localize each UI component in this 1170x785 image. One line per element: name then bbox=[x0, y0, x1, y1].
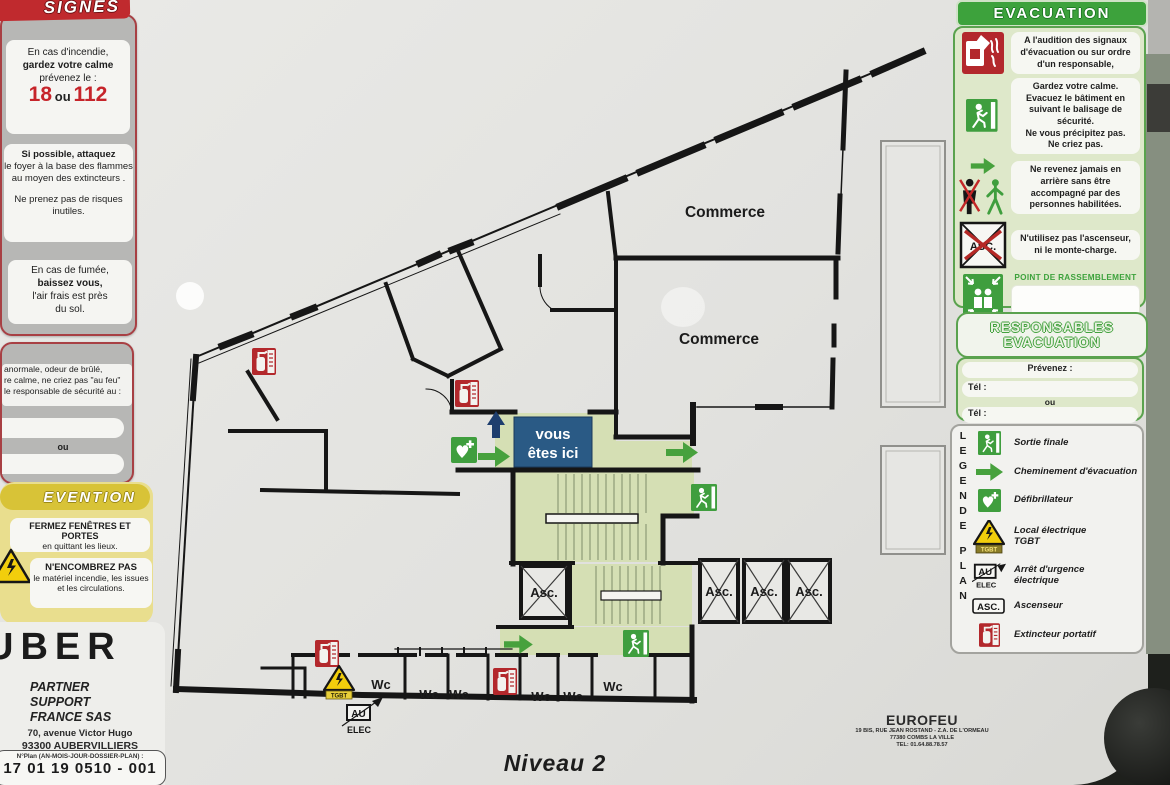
evac-text-1: A l'audition des signaux d'évacuation ou… bbox=[1011, 32, 1140, 73]
plan-number-field: N°Plan (AN-MOIS-JOUR-DOSSIER-PLAN) : 17 … bbox=[0, 750, 166, 785]
exit-man-icon bbox=[972, 431, 1006, 455]
exit-man-icon bbox=[959, 99, 1007, 133]
room-label-commerce-2: Commerce bbox=[679, 331, 759, 348]
ou: ou bbox=[55, 89, 71, 104]
prevention-title: EVENTION bbox=[43, 489, 136, 506]
elevator-label: Asc. bbox=[795, 584, 822, 599]
alert-l1: anormale, odeur de brûlé, bbox=[4, 364, 132, 375]
fire-instruction-box: En cas d'incendie, gardez votre calme pr… bbox=[6, 40, 130, 134]
company-l2: SUPPORT bbox=[30, 695, 111, 710]
svg-text:Wc: Wc bbox=[603, 679, 623, 694]
no-return-icons bbox=[959, 158, 1007, 217]
responsables-ou: ou bbox=[962, 397, 1138, 407]
glare bbox=[176, 282, 204, 310]
prevention-header: EVENTION bbox=[0, 484, 150, 510]
legend-label-exit: Sortie finale bbox=[1014, 438, 1068, 449]
svg-text:Wc: Wc bbox=[563, 689, 583, 704]
prev-b1a: FERMEZ FENÊTRES ET PORTES bbox=[10, 521, 150, 541]
floor-level-label: Niveau 2 bbox=[470, 750, 640, 777]
extinguisher-icon bbox=[972, 623, 1006, 647]
company-l3: FRANCE SAS bbox=[30, 710, 111, 725]
legend-label-extinguisher: Extincteur portatif bbox=[1014, 630, 1096, 641]
company-addr1: 70, avenue Victor Hugo bbox=[0, 728, 160, 740]
prev-b2c: et les circulations. bbox=[30, 583, 152, 593]
attack-l1: Si possible, attaquez bbox=[4, 149, 133, 161]
alert-l3: le responsable de sécurité au : bbox=[4, 386, 132, 397]
legend-label-elevator: Ascenseur bbox=[1014, 601, 1063, 612]
evac-text-2a: Gardez votre calme. bbox=[1015, 81, 1136, 93]
tel-field-1: Tél : bbox=[962, 381, 1138, 397]
close-windows-box: FERMEZ FENÊTRES ET PORTES en quittant le… bbox=[10, 518, 150, 552]
legend-item-exit: Sortie finale bbox=[972, 431, 1140, 455]
prevention-panel: EVENTION FERMEZ FENÊTRES ET PORTES en qu… bbox=[0, 482, 153, 624]
shaft-rectangles bbox=[881, 141, 945, 554]
evac-row-alarm: A l'audition des signaux d'évacuation ou… bbox=[959, 32, 1140, 74]
legend-word-legende: LEGENDE bbox=[957, 430, 969, 535]
responsables-title-1: RESPONSABLES bbox=[990, 320, 1114, 335]
smoke-l2: baissez vous, bbox=[8, 277, 132, 290]
legend-item-extinguisher: Extincteur portatif bbox=[972, 623, 1140, 647]
no-elevator-icon: ASC. bbox=[959, 221, 1007, 269]
installer-block: EUROFEU 19 BIS, RUE JEAN ROSTAND - Z.A. … bbox=[843, 712, 1001, 749]
attack-l3: Ne prenez pas de risques bbox=[4, 194, 133, 206]
responsables-fields: Prévenez : Tél : ou Tél : bbox=[956, 357, 1144, 421]
elevator-label: Asc. bbox=[705, 584, 732, 599]
evacuation-banner: EVACUATION bbox=[956, 0, 1148, 27]
legend-label-route: Cheminement d'évacuation bbox=[1014, 467, 1137, 478]
phone-blank-field bbox=[2, 454, 124, 474]
responsables-header: RESPONSABLES EVACUATION bbox=[956, 312, 1148, 358]
room-label-commerce-1: Commerce bbox=[685, 204, 765, 221]
svg-text:Wc: Wc bbox=[531, 689, 551, 704]
stair-handrail-lower bbox=[601, 591, 661, 600]
plan-number-label: N°Plan (AN-MOIS-JOUR-DOSSIER-PLAN) : bbox=[0, 753, 165, 760]
evac-text-2c: Ne vous précipitez pas. bbox=[1015, 128, 1136, 140]
svg-text:êtes ici: êtes ici bbox=[528, 445, 579, 462]
legend-items: Sortie finale Cheminement d'évacuation D… bbox=[972, 430, 1140, 648]
glare bbox=[661, 287, 705, 327]
green-arrow-icon bbox=[972, 463, 1006, 481]
extinguisher-icon bbox=[493, 668, 517, 695]
svg-text:Wc: Wc bbox=[449, 687, 469, 702]
evac-row-noreturn: Ne revenez jamais en arrière sans être a… bbox=[959, 158, 1140, 217]
legend-item-emergency-stop: AU ELEC Arrêt d'urgence électrique bbox=[972, 562, 1140, 590]
smoke-l4: du sol. bbox=[8, 303, 132, 316]
evac-text-3: Ne revenez jamais en arrière sans être a… bbox=[1011, 161, 1140, 214]
assembly-point-label: POINT DE RASSEMBLEMENT bbox=[1011, 273, 1140, 282]
exit-man-icon bbox=[623, 630, 649, 657]
consignes-title: SIGNES bbox=[44, 0, 121, 18]
svg-text:Wc: Wc bbox=[419, 687, 439, 702]
legend-label-au-2: électrique bbox=[1014, 576, 1084, 587]
green-arrow-icon bbox=[970, 158, 996, 174]
fire-l3: prévenez le : bbox=[6, 72, 130, 85]
elevator-label: Asc. bbox=[530, 585, 557, 600]
emergency-numbers: 18 ou 112 bbox=[6, 88, 130, 105]
fire-instructions-panel: En cas d'incendie, gardez votre calme pr… bbox=[0, 14, 137, 336]
legend-label-defib: Défibrillateur bbox=[1014, 495, 1073, 506]
evac-text-4: N'utilisez pas l'ascenseur, ni le monte-… bbox=[1011, 230, 1140, 259]
extinguisher-icon bbox=[252, 348, 276, 375]
emergency-stop-icon: AU ELEC bbox=[972, 562, 1006, 590]
prev-b2a: N'ENCOMBREZ PAS bbox=[30, 562, 152, 573]
evac-text-2d: Ne criez pas. bbox=[1015, 139, 1136, 151]
plan-number: 17 01 19 0510 - 001 bbox=[0, 760, 165, 777]
evac-row-noelevator: ASC. N'utilisez pas l'ascenseur, ni le m… bbox=[959, 221, 1140, 269]
smoke-box: En cas de fumée, baissez vous, l'air fra… bbox=[8, 260, 132, 324]
legend-panel: LEGENDE PLAN Sortie finale Cheminement d… bbox=[950, 424, 1144, 654]
svg-text:vous: vous bbox=[535, 426, 570, 443]
extinguisher-icon bbox=[315, 640, 339, 667]
forbidden-return-figures-icon bbox=[958, 177, 1008, 217]
attack-fire-box: Si possible, attaquez le foyer à la base… bbox=[4, 144, 133, 242]
number-18: 18 bbox=[29, 83, 52, 106]
evacuation-title: EVACUATION bbox=[994, 5, 1111, 22]
responsables-title-2: EVACUATION bbox=[1003, 335, 1100, 350]
consignes-banner: SIGNES bbox=[0, 0, 130, 22]
svg-text:Wc: Wc bbox=[371, 677, 391, 692]
legend-item-route: Cheminement d'évacuation bbox=[972, 463, 1140, 481]
alert-text: anormale, odeur de brûlé, re calme, ne c… bbox=[2, 364, 132, 406]
prevenez-field: Prévenez : bbox=[962, 362, 1138, 378]
legend-vertical-labels: LEGENDE PLAN bbox=[956, 430, 970, 648]
stair-handrail bbox=[546, 514, 638, 523]
elevator-label: Asc. bbox=[750, 584, 777, 599]
installer-addr1: 19 BIS, RUE JEAN ROSTAND - Z.A. DE L'ORM… bbox=[843, 728, 1001, 735]
smoke-l3: l'air frais est près bbox=[8, 290, 132, 303]
warning-triangle-icon bbox=[0, 548, 32, 586]
alert-ou: ou bbox=[2, 442, 124, 452]
svg-text:ASC.: ASC. bbox=[977, 602, 1000, 613]
fire-l1: En cas d'incendie, bbox=[6, 46, 130, 59]
legend-label-tgbt: Local électrique TGBT bbox=[1014, 526, 1086, 548]
company-l1: PARTNER bbox=[30, 680, 111, 695]
evac-text-2b: Evacuez le bâtiment en suivant le balisa… bbox=[1015, 93, 1136, 128]
smoke-l1: En cas de fumée, bbox=[8, 264, 132, 277]
attack-l4: inutiles. bbox=[4, 206, 133, 218]
alert-l2: re calme, ne criez pas "au feu" bbox=[4, 375, 132, 386]
svg-text:TGBT: TGBT bbox=[981, 548, 998, 554]
evacuation-plan-photo: Asc. Asc. Asc. Asc. Commerce Commerce Wc… bbox=[0, 0, 1170, 785]
alert-panel: anormale, odeur de brûlé, re calme, ne c… bbox=[0, 342, 134, 484]
company-address: 70, avenue Victor Hugo 93300 AUBERVILLIE… bbox=[0, 728, 160, 752]
installer-phone: TEL: 01.64.88.78.57 bbox=[843, 742, 1001, 749]
installer-name: EUROFEU bbox=[843, 712, 1001, 728]
installer-addr2: 77380 COMBS LA VILLE bbox=[843, 735, 1001, 742]
legend-item-tgbt: TGBT Local électrique TGBT bbox=[972, 520, 1140, 554]
fire-l2: gardez votre calme bbox=[6, 59, 130, 72]
attack-l2: le foyer à la base des flammes au moyen … bbox=[4, 161, 133, 185]
company-name: UBER bbox=[0, 626, 122, 669]
company-panel: UBER PARTNER SUPPORT FRANCE SAS 70, aven… bbox=[0, 622, 165, 785]
evac-text-2: Gardez votre calme. Evacuez le bâtiment … bbox=[1011, 78, 1140, 154]
svg-text:TGBT: TGBT bbox=[331, 694, 348, 700]
legend-label-emergency-stop: Arrêt d'urgence électrique bbox=[1014, 565, 1084, 587]
tgbt-icon: TGBT bbox=[972, 520, 1006, 554]
svg-text:ELEC: ELEC bbox=[976, 580, 997, 589]
tel-field-2: Tél : bbox=[962, 407, 1138, 423]
emergency-stop-sign: AU ELEC bbox=[342, 697, 383, 735]
tgbt-sign: TGBT bbox=[324, 666, 354, 700]
exit-man-icon bbox=[691, 484, 717, 511]
number-112: 112 bbox=[73, 83, 107, 106]
svg-text:ELEC: ELEC bbox=[347, 725, 372, 735]
prev-b2b: le matériel incendie, les issues bbox=[30, 573, 152, 583]
legend-item-defib: Défibrillateur bbox=[972, 489, 1140, 512]
elevator-box-icon: ASC. bbox=[972, 598, 1006, 615]
legend-word-plan: PLAN bbox=[957, 545, 969, 605]
evac-row-calm: Gardez votre calme. Evacuez le bâtiment … bbox=[959, 78, 1140, 154]
company-lines: PARTNER SUPPORT FRANCE SAS bbox=[30, 680, 111, 725]
phone-blank-field bbox=[2, 418, 124, 438]
alarm-icon bbox=[959, 32, 1007, 74]
legend-label-tgbt-2: TGBT bbox=[1014, 537, 1086, 548]
defibrillator-icon bbox=[972, 489, 1006, 512]
do-not-block-box: N'ENCOMBREZ PAS le matériel incendie, le… bbox=[30, 558, 152, 608]
legend-item-elevator: ASC. Ascenseur bbox=[972, 598, 1140, 615]
defibrillator-icon bbox=[451, 437, 477, 463]
evacuation-instructions-panel: A l'audition des signaux d'évacuation ou… bbox=[953, 26, 1146, 308]
extinguisher-icon bbox=[455, 380, 479, 407]
